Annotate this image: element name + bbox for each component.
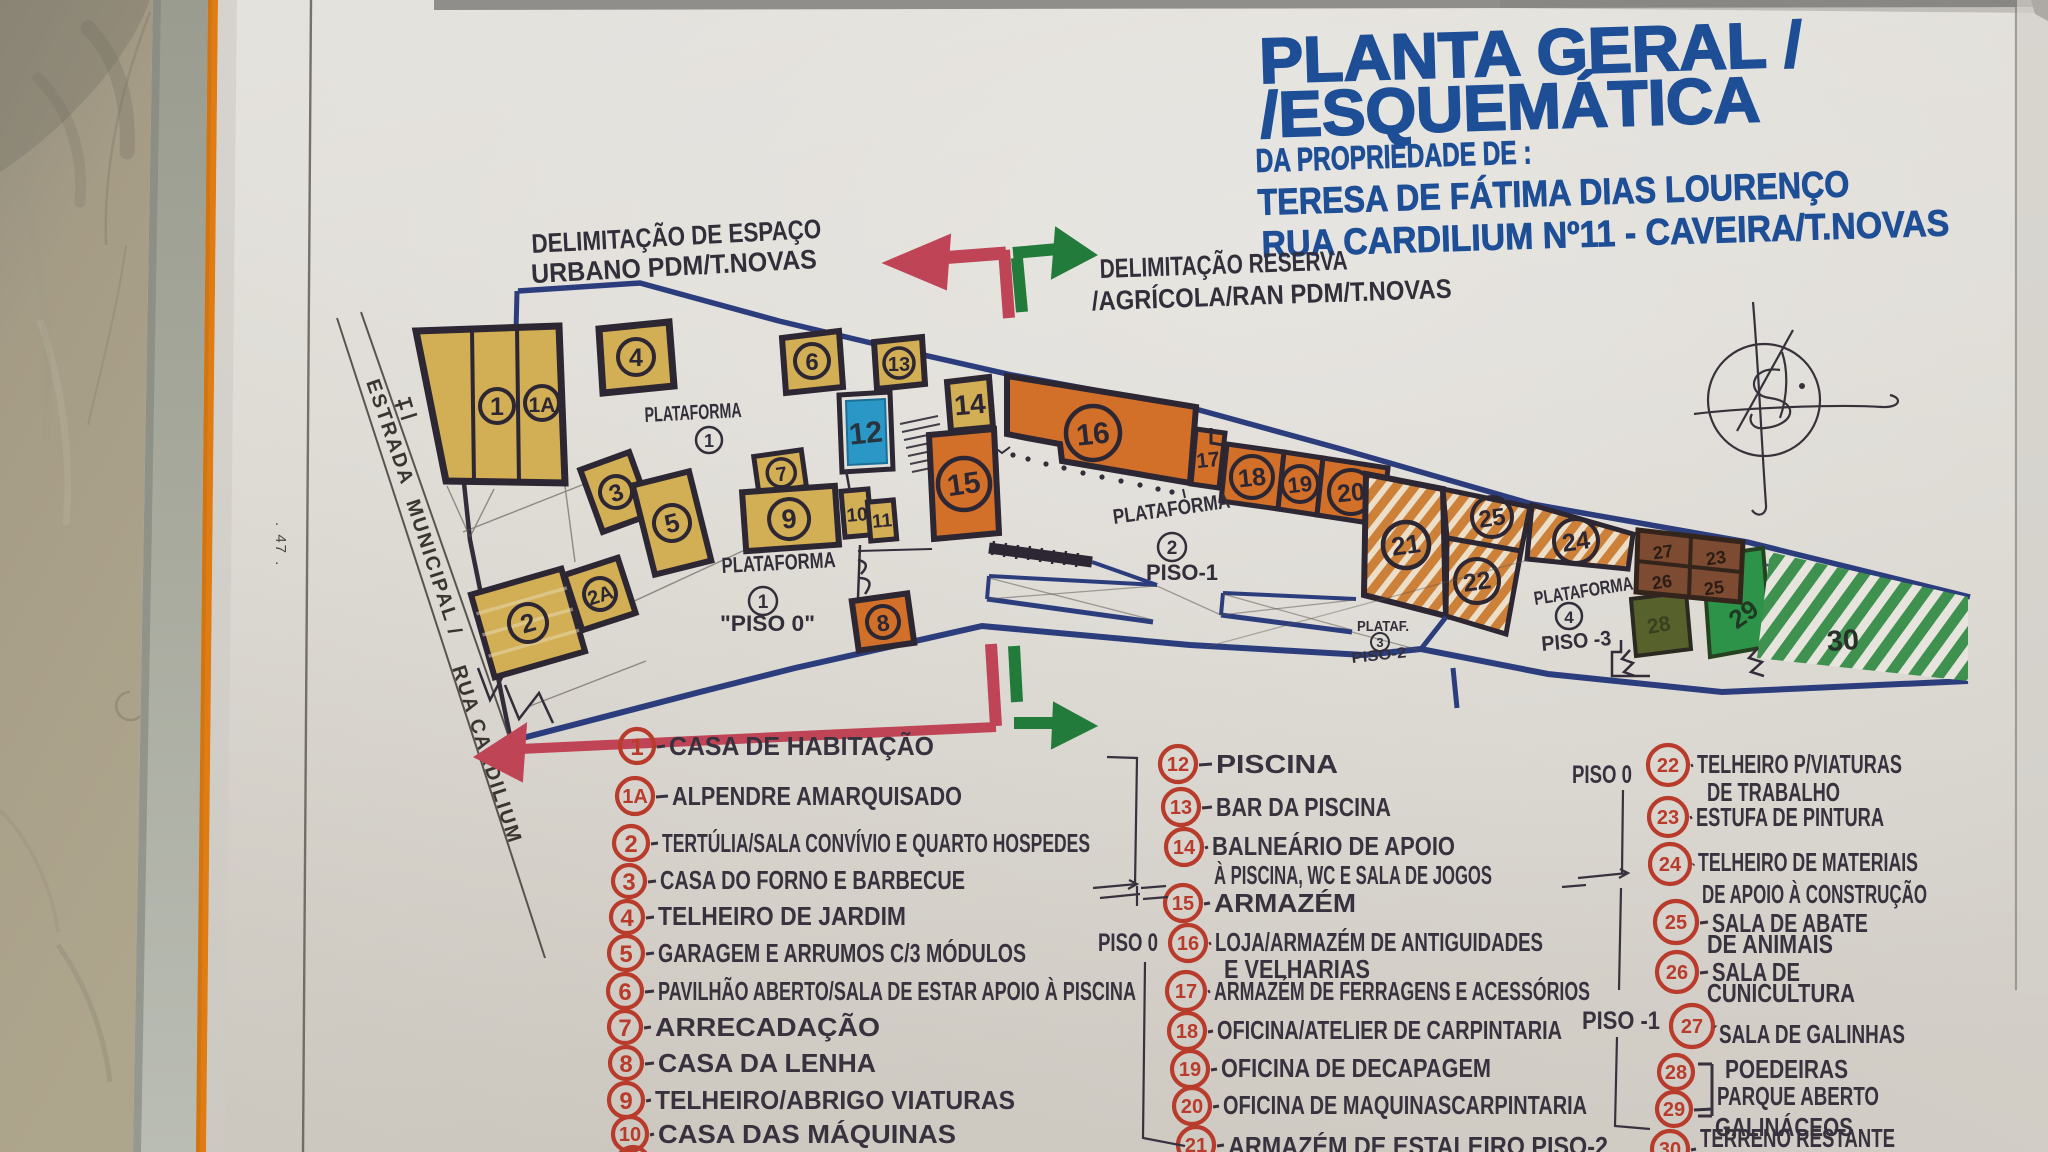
svg-text:23: 23	[1657, 807, 1679, 829]
svg-text:DE APOIO À CONSTRUÇÃO: DE APOIO À CONSTRUÇÃO	[1702, 879, 1927, 909]
svg-text:28: 28	[1665, 1062, 1687, 1084]
svg-text:2: 2	[624, 831, 637, 858]
svg-text:ARMAZÉM DE ESTALEIRO PISO-2: ARMAZÉM DE ESTALEIRO PISO-2	[1228, 1131, 1608, 1152]
svg-text:CASA DE HABITAÇÃO: CASA DE HABITAÇÃO	[669, 731, 934, 761]
svg-text:ARMAZÉM: ARMAZÉM	[1214, 888, 1356, 918]
svg-text:11: 11	[871, 510, 893, 533]
svg-text:25: 25	[1703, 577, 1726, 600]
svg-text:17: 17	[1175, 981, 1197, 1003]
svg-text:PISCINA: PISCINA	[1216, 749, 1338, 779]
svg-text:8: 8	[619, 1051, 632, 1078]
svg-text:PISO 0: PISO 0	[1098, 929, 1158, 957]
svg-text:1: 1	[704, 431, 714, 451]
svg-text:25: 25	[1477, 503, 1507, 533]
svg-text:BAR DA PISCINA: BAR DA PISCINA	[1216, 792, 1391, 822]
svg-text:30: 30	[1826, 624, 1860, 658]
svg-text:TELHEIRO DE JARDIM: TELHEIRO DE JARDIM	[658, 901, 906, 931]
svg-text:27: 27	[1681, 1016, 1703, 1038]
svg-text:ALPENDRE AMARQUISADO: ALPENDRE AMARQUISADO	[672, 781, 962, 811]
svg-text:30: 30	[1659, 1139, 1681, 1152]
svg-text:TERTÚLIA/SALA CONVÍVIO E QUART: TERTÚLIA/SALA CONVÍVIO E QUARTO HOSPEDES	[662, 828, 1090, 858]
svg-text:. 47 .: . 47 .	[272, 522, 289, 567]
svg-text:16: 16	[1075, 416, 1112, 452]
svg-text:29: 29	[1663, 1099, 1685, 1121]
svg-text:1A: 1A	[529, 394, 556, 417]
svg-text:14: 14	[953, 388, 987, 422]
svg-text:24: 24	[1659, 854, 1682, 876]
svg-text:5: 5	[619, 941, 632, 968]
svg-text:CASA DA LENHA: CASA DA LENHA	[658, 1048, 876, 1078]
svg-text:4: 4	[1564, 608, 1574, 627]
svg-text:ESTUFA DE PINTURA: ESTUFA DE PINTURA	[1696, 802, 1884, 832]
svg-text:17: 17	[1195, 448, 1221, 473]
svg-text:4: 4	[620, 905, 634, 932]
svg-text:10: 10	[619, 1124, 641, 1146]
svg-text:23: 23	[1705, 547, 1728, 570]
svg-text:9: 9	[619, 1088, 632, 1115]
svg-text:TELHEIRO DE MATERIAIS: TELHEIRO DE MATERIAIS	[1698, 847, 1918, 877]
svg-text:13: 13	[1170, 797, 1192, 819]
svg-text:6: 6	[805, 349, 818, 376]
svg-text:OFICINA/ATELIER DE CARPINTARIA: OFICINA/ATELIER DE CARPINTARIA	[1217, 1015, 1562, 1045]
svg-text:7: 7	[618, 1015, 631, 1042]
svg-text:13: 13	[888, 354, 910, 376]
svg-text:1A: 1A	[622, 786, 648, 808]
svg-text:20: 20	[1181, 1096, 1203, 1118]
svg-text:PLATAF.: PLATAF.	[1357, 618, 1409, 635]
svg-text:ARMAZÉM DE FERRAGENS E ACESSÓR: ARMAZÉM DE FERRAGENS E ACESSÓRIOS	[1214, 976, 1590, 1006]
svg-text:22: 22	[1657, 755, 1679, 777]
svg-text:2: 2	[1167, 538, 1178, 559]
svg-text:12: 12	[847, 415, 884, 451]
svg-text:TERRENO RESTANTE: TERRENO RESTANTE	[1700, 1123, 1895, 1152]
svg-text:OFICINA DE MAQUINASCARPINTARIA: OFICINA DE MAQUINASCARPINTARIA	[1223, 1090, 1587, 1120]
svg-text:BALNEÁRIO DE APOIO: BALNEÁRIO DE APOIO	[1212, 831, 1455, 861]
svg-text:CUNICULTURA: CUNICULTURA	[1707, 978, 1855, 1008]
svg-text:1: 1	[490, 393, 504, 421]
svg-text:1: 1	[630, 734, 643, 761]
svg-text:À PISCINA, WC E SALA DE JOGOS: À PISCINA, WC E SALA DE JOGOS	[1214, 860, 1492, 890]
svg-text:CASA DO FORNO E BARBECUE: CASA DO FORNO E BARBECUE	[660, 865, 965, 895]
svg-text:19: 19	[1179, 1059, 1201, 1081]
svg-text:15: 15	[1172, 893, 1194, 915]
svg-text:18: 18	[1176, 1021, 1198, 1043]
svg-text:3: 3	[622, 869, 635, 896]
svg-text:"PISO 0": "PISO 0"	[720, 611, 815, 636]
svg-text:19: 19	[1286, 471, 1313, 498]
svg-text:10: 10	[846, 504, 869, 527]
svg-text:1: 1	[758, 592, 769, 613]
svg-text:26: 26	[1651, 571, 1674, 594]
svg-text:SALA DE GALINHAS: SALA DE GALINHAS	[1719, 1019, 1905, 1049]
svg-text:GARAGEM E ARRUMOS C/3 MÓDULOS: GARAGEM E ARRUMOS C/3 MÓDULOS	[658, 938, 1026, 968]
svg-text:PISO -1: PISO -1	[1582, 1007, 1660, 1035]
svg-text:21: 21	[1185, 1135, 1207, 1152]
svg-text:21: 21	[1389, 528, 1422, 562]
svg-text:CASA DAS MÁQUINAS: CASA DAS MÁQUINAS	[658, 1119, 956, 1149]
svg-text:25: 25	[1665, 912, 1687, 934]
svg-text:TELHEIRO/ABRIGO VIATURAS: TELHEIRO/ABRIGO VIATURAS	[655, 1085, 1015, 1115]
svg-text:PISO-1: PISO-1	[1146, 560, 1218, 585]
svg-text:OFICINA DE DECAPAGEM: OFICINA DE DECAPAGEM	[1221, 1053, 1491, 1083]
svg-text:PISO 0: PISO 0	[1572, 761, 1632, 789]
svg-text:28: 28	[1645, 612, 1672, 639]
svg-text:PARQUE ABERTO: PARQUE ABERTO	[1717, 1081, 1879, 1111]
svg-text:18: 18	[1237, 463, 1268, 494]
svg-text:PAVILHÃO ABERTO/SALA DE ESTAR: PAVILHÃO ABERTO/SALA DE ESTAR APOIO À PI…	[658, 976, 1136, 1006]
svg-text:15: 15	[945, 466, 983, 503]
svg-text:12: 12	[1167, 754, 1189, 776]
svg-text:DE ANIMAIS: DE ANIMAIS	[1707, 929, 1833, 959]
svg-text:ARRECADAÇÃO: ARRECADAÇÃO	[655, 1012, 880, 1042]
svg-text:TELHEIRO P/VIATURAS: TELHEIRO P/VIATURAS	[1697, 749, 1902, 779]
svg-text:14: 14	[1173, 837, 1196, 859]
svg-text:4: 4	[629, 344, 643, 372]
svg-text:26: 26	[1666, 962, 1688, 984]
svg-text:16: 16	[1177, 933, 1199, 955]
svg-text:27: 27	[1652, 541, 1675, 564]
svg-text:POEDEIRAS: POEDEIRAS	[1725, 1054, 1848, 1084]
svg-text:LOJA/ARMAZÉM DE ANTIGUIDADES: LOJA/ARMAZÉM DE ANTIGUIDADES	[1215, 927, 1543, 957]
svg-text:6: 6	[618, 979, 631, 1006]
svg-text:20: 20	[1336, 478, 1367, 509]
svg-text:24: 24	[1560, 526, 1592, 558]
svg-text:9: 9	[781, 504, 798, 535]
